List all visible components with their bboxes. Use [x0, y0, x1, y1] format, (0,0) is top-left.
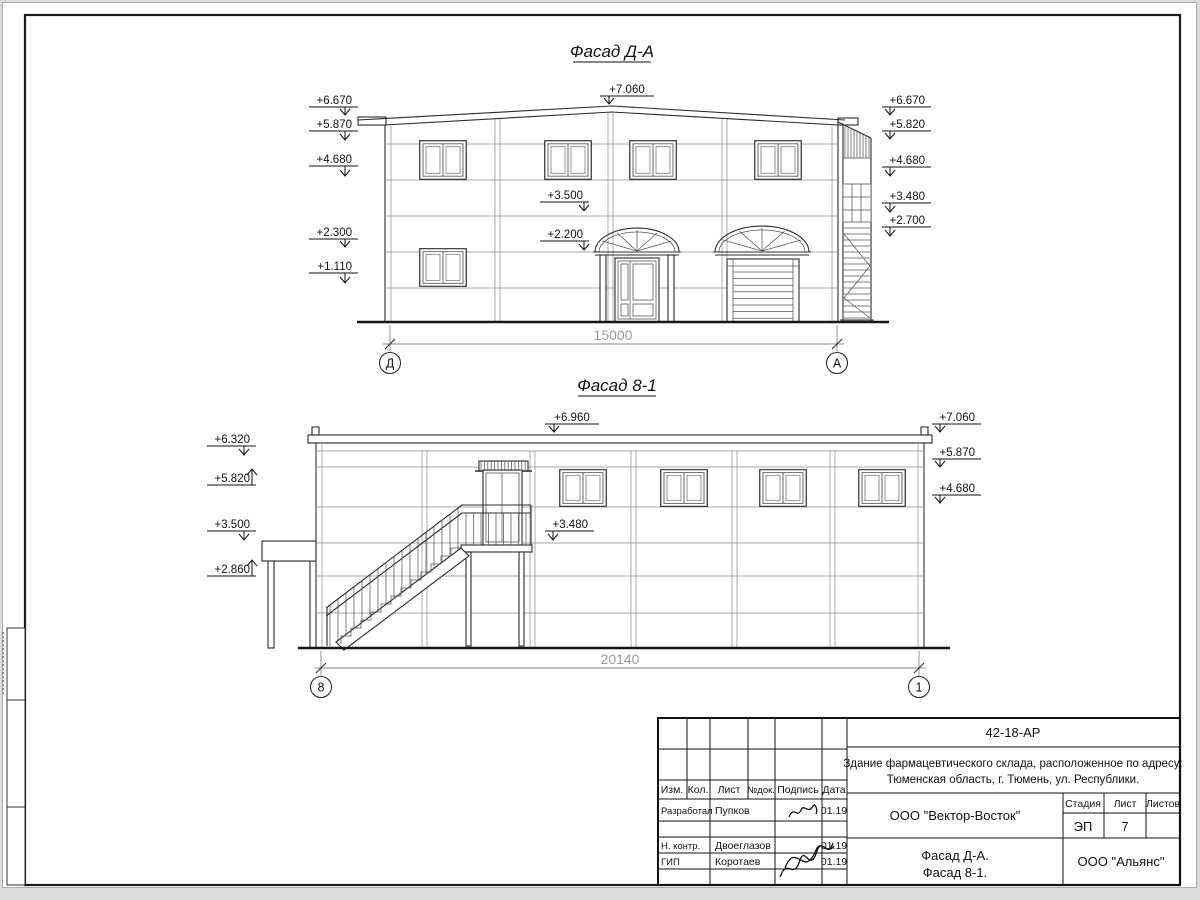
window [661, 470, 708, 507]
elevation-mark-arrow [882, 131, 931, 139]
row-role: Н. контр. [661, 841, 700, 852]
elevation-value: +2.300 [317, 227, 353, 239]
landing-post [519, 552, 524, 646]
elevation-mark: +5.870 [309, 119, 358, 140]
dimension-text: 15000 [594, 327, 633, 343]
building-wall [316, 443, 924, 648]
doc-number: 42-18-АР [986, 725, 1041, 740]
row-role: ГИП [661, 857, 680, 868]
col-header-data: Дата [822, 784, 845, 796]
elevation-value: +4.680 [317, 154, 353, 166]
elevation-value: +2.700 [890, 215, 926, 227]
elevation-mark-arrow [882, 167, 931, 176]
elevation-mark: +5.870 [932, 447, 981, 467]
elevation-mark: +7.060 [600, 84, 654, 104]
elevation-mark-arrow [882, 227, 931, 236]
margin-box [7, 807, 25, 885]
col-header-kol: Кол. [688, 784, 709, 796]
elevation-value: +3.500 [548, 190, 584, 202]
elevation-mark: +5.820 [207, 469, 257, 485]
drawing-sheet: Фасад Д-А [0, 0, 1200, 900]
designer-company: ООО "Вектор-Восток" [890, 808, 1021, 823]
sheet-label: Лист [1114, 798, 1137, 810]
elevation-value: +2.200 [548, 229, 584, 241]
elevation-value: +7.060 [609, 84, 645, 96]
elevation-mark: +2.700 [882, 215, 931, 236]
landing [461, 545, 532, 552]
row-name: Двоеглазов [715, 840, 771, 852]
parapet-cap [308, 435, 932, 443]
project-description-line2: Тюменская область, г. Тюмень, ул. Респуб… [887, 774, 1140, 786]
col-header-izm: Изм. [661, 784, 684, 796]
elevation-mark-arrow [207, 531, 256, 540]
row-role: Разработал [661, 806, 713, 817]
elevation-mark: +1.110 [309, 261, 358, 283]
parapet-tab [921, 427, 928, 435]
stair-tower [838, 122, 874, 322]
elevation-value: +5.820 [890, 119, 926, 131]
facade-81-drawing: Фасад 8-1 [262, 376, 950, 698]
landing-post [466, 552, 471, 646]
window [760, 470, 807, 507]
window [560, 470, 607, 507]
elevation-value: +5.870 [940, 447, 976, 459]
elevation-mark: +2.300 [309, 227, 358, 247]
elevation-mark: +4.680 [882, 155, 931, 176]
elevation-mark: +5.820 [882, 119, 931, 139]
dimension-81: 20140 8 1 [311, 651, 930, 698]
elevation-mark-arrow [932, 459, 981, 467]
row-date: 01.19 [821, 805, 847, 817]
col-header-podpis: Подпись [777, 784, 819, 796]
elevation-mark-arrow [207, 446, 256, 455]
col-header-ndok: №док. [747, 785, 775, 796]
content-line1: Фасад Д-А. [921, 848, 988, 863]
window [545, 141, 592, 180]
project-description-line1: Здание фармацевтического склада, располо… [843, 758, 1182, 770]
elevation-mark-arrow [600, 96, 654, 104]
elevation-mark: +7.060 [932, 412, 981, 432]
annex-canopy [262, 541, 316, 648]
window [420, 249, 467, 287]
elevation-mark-arrow [309, 239, 358, 247]
title-block: 42-18-АР Здание фармацевтического склада… [658, 718, 1183, 885]
elevation-mark-arrow [309, 166, 358, 176]
drawing-canvas: Фасад Д-А [0, 0, 1200, 900]
elevation-value: +6.320 [215, 434, 251, 446]
elevation-value: +6.670 [890, 95, 926, 107]
elevation-value: +2.860 [215, 564, 251, 576]
elevation-mark-arrow [309, 273, 358, 283]
elevation-mark: +6.670 [309, 95, 358, 115]
elevation-mark: +6.670 [882, 95, 931, 115]
elevation-value: +5.870 [317, 119, 353, 131]
window [630, 141, 677, 180]
row-date: 01.19 [821, 856, 847, 868]
row-name: Коротаев [715, 856, 761, 868]
dimension-da: 15000 Д А [380, 325, 848, 374]
elevation-value: +6.960 [554, 412, 590, 424]
window [755, 141, 802, 180]
elevation-mark: +4.680 [309, 154, 358, 176]
row-name: Пупков [715, 805, 750, 817]
elevation-value: +3.500 [215, 519, 251, 531]
elevation-value: +1.110 [317, 261, 352, 273]
elevation-mark-arrow [882, 107, 931, 115]
elevation-mark-arrow [309, 131, 358, 140]
elevation-mark: +6.960 [545, 412, 599, 432]
elevation-mark-arrow [932, 495, 981, 503]
elevation-mark-arrow [932, 424, 981, 432]
margin-box [7, 700, 25, 807]
elevation-value: +6.670 [317, 95, 353, 107]
roller-gate [727, 259, 799, 322]
stage-label: Стадия [1065, 798, 1101, 810]
facade-81-title: Фасад 8-1 [577, 376, 657, 395]
elevation-mark-arrow [545, 424, 599, 432]
window [420, 141, 467, 180]
content-line2: Фасад 8-1. [923, 865, 987, 880]
elevation-value: +3.480 [890, 191, 926, 203]
elevation-mark: +2.860 [207, 560, 257, 576]
elevation-value: +5.820 [215, 473, 251, 485]
axis-label: 8 [318, 681, 325, 695]
sheet-number: 7 [1121, 819, 1128, 834]
signature [789, 805, 817, 817]
elevation-mark-arrow [882, 203, 931, 212]
elevation-value: +3.480 [553, 519, 589, 531]
elevation-mark: +4.680 [932, 483, 981, 503]
elevation-value: +7.060 [940, 412, 976, 424]
stage-value: ЭП [1074, 819, 1093, 834]
elevation-value: +4.680 [890, 155, 926, 167]
axis-label: 1 [916, 681, 923, 695]
axis-label: Д [386, 357, 395, 371]
elevation-mark: +3.500 [207, 519, 256, 540]
row-date: 01.19 [821, 840, 847, 852]
elevation-mark-arrow [309, 107, 358, 115]
window [859, 470, 906, 507]
facade-da-title: Фасад Д-А [570, 42, 654, 61]
org-company: ООО "Альянс" [1078, 854, 1165, 869]
col-header-list: Лист [718, 784, 741, 796]
margin-box [7, 628, 25, 700]
elevation-mark: +3.480 [882, 191, 931, 212]
sheets-label: Листов [1146, 798, 1181, 810]
dimension-text: 20140 [601, 651, 640, 667]
elevation-mark: +6.320 [207, 434, 256, 455]
elevation-value: +4.680 [940, 483, 976, 495]
parapet-tab [312, 427, 319, 435]
axis-label: А [833, 357, 842, 371]
